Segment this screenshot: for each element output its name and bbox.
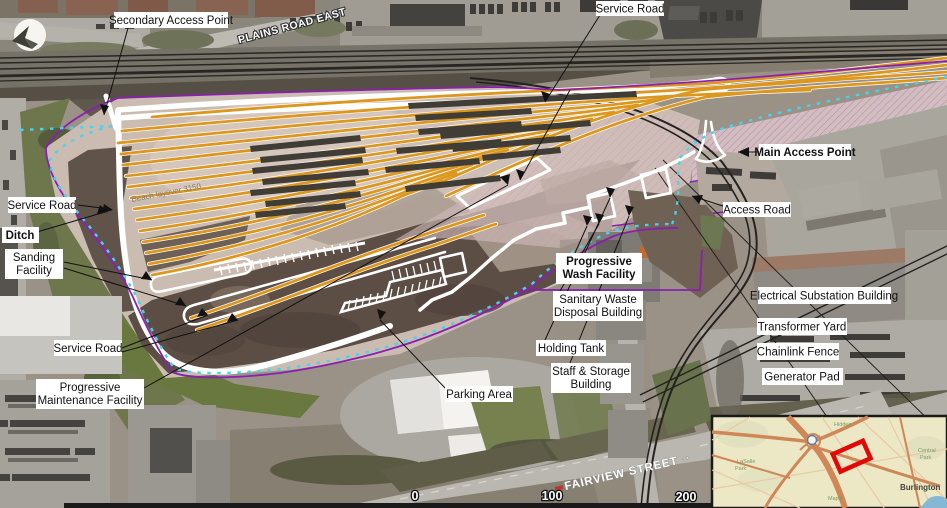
svg-text:Maintenance Facility: Maintenance Facility <box>38 395 143 407</box>
svg-text:Transformer Yard: Transformer Yard <box>758 322 847 334</box>
svg-text:Holding Tank: Holding Tank <box>538 343 605 355</box>
svg-text:Progressive: Progressive <box>566 256 632 268</box>
svg-text:Sanitary Waste: Sanitary Waste <box>559 294 637 306</box>
svg-text:LaSalle: LaSalle <box>737 459 755 465</box>
svg-text:Electrical Substation Building: Electrical Substation Building <box>750 291 898 303</box>
svg-text:Main Access Point: Main Access Point <box>754 147 855 159</box>
svg-text:Chainlink Fence: Chainlink Fence <box>757 347 839 359</box>
svg-text:Generator Pad: Generator Pad <box>764 372 839 384</box>
svg-text:Sanding: Sanding <box>13 252 55 264</box>
svg-text:Burlington: Burlington <box>900 483 941 492</box>
svg-text:Parking Area: Parking Area <box>446 389 512 401</box>
svg-text:200: 200 <box>676 490 697 504</box>
svg-text:Building: Building <box>571 379 612 391</box>
svg-text:Service Road: Service Road <box>53 343 122 355</box>
svg-text:Park: Park <box>735 466 747 472</box>
svg-text:0: 0 <box>412 489 419 503</box>
svg-text:Secondary Access Point: Secondary Access Point <box>109 15 234 27</box>
svg-text:Service Road: Service Road <box>7 200 76 212</box>
svg-text:Hidden: Hidden <box>834 422 851 428</box>
svg-text:Park: Park <box>920 455 932 461</box>
svg-text:Access Road: Access Road <box>723 205 791 217</box>
svg-text:Wash Facility: Wash Facility <box>562 269 636 281</box>
svg-text:100: 100 <box>542 489 563 503</box>
svg-text:Staff & Storage: Staff & Storage <box>552 366 630 378</box>
svg-text:Progressive: Progressive <box>60 382 121 394</box>
svg-text:Service Road: Service Road <box>595 4 664 16</box>
svg-text:Ditch: Ditch <box>6 230 35 242</box>
svg-text:Disposal Building: Disposal Building <box>554 307 642 319</box>
svg-text:Facility: Facility <box>16 265 52 277</box>
svg-text:Central: Central <box>918 448 936 454</box>
svg-text:Maple: Maple <box>828 496 843 502</box>
